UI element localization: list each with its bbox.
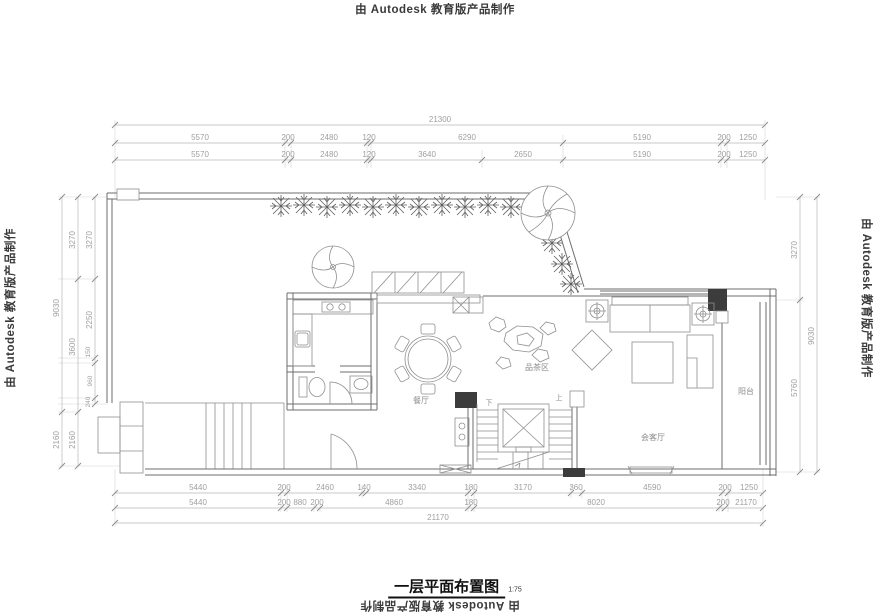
kitchen-counter-side [293, 314, 312, 366]
column-outline [716, 311, 728, 323]
floor-plan-svg: 21300 5570 200 2480 120 6290 5190 200 12… [0, 0, 878, 616]
pillar-left [586, 300, 608, 322]
planter-box [98, 417, 120, 453]
chaise [687, 335, 713, 388]
dim-label: 2460 [316, 483, 334, 492]
dim-label: 140 [357, 483, 371, 492]
house-walls [145, 289, 776, 477]
dim-label: 200 [281, 133, 295, 142]
window-bench [628, 466, 674, 474]
bathroom-door [330, 382, 352, 404]
toilet-tank [299, 377, 307, 397]
dim-label: 1250 [740, 483, 758, 492]
dim-label: 2160 [68, 431, 77, 449]
dim-label: 120 [362, 133, 376, 142]
burner [339, 304, 345, 310]
dim-label: 5440 [189, 498, 207, 507]
bathroom [299, 376, 372, 404]
dim-label: 3600 [68, 338, 77, 356]
stair-label-down: 下 [486, 399, 493, 407]
dim-label: 5440 [189, 483, 207, 492]
coffee-table [632, 342, 673, 383]
dim-label: 1250 [739, 133, 757, 142]
burner [327, 304, 333, 310]
living-room [572, 297, 714, 388]
tree-large [521, 186, 575, 240]
dim-label: 8020 [587, 498, 605, 507]
end-table-diamond [572, 330, 612, 370]
stair-label-up: 上 [556, 393, 563, 402]
dim-label: 3170 [514, 483, 532, 492]
dim-label: 5190 [633, 133, 651, 142]
dim-label: 4590 [643, 483, 661, 492]
dim-label: 3640 [418, 150, 436, 159]
dim-label: 200 [281, 150, 295, 159]
drawing-title: 一层平面布置图 [388, 579, 505, 599]
dim-label: 200 [277, 483, 291, 492]
planter-column [120, 402, 143, 473]
dining-area [331, 324, 469, 469]
dim-label: 3340 [408, 483, 426, 492]
dim-label: 1250 [739, 150, 757, 159]
dim-label: 9030 [807, 327, 816, 345]
drawing-sheet: 由 Autodesk 教育版产品制作 由 Autodesk 教育版产品制作 由 … [0, 0, 878, 616]
dim-label: 200 [718, 483, 732, 492]
stove [322, 302, 350, 312]
dim-label: 960 [87, 375, 94, 386]
gate-pier [117, 189, 139, 200]
dim-label: 21170 [427, 513, 449, 522]
dimension-labels: 21300 5570 200 2480 120 6290 5190 200 12… [52, 115, 816, 522]
dim-label: 21300 [429, 115, 452, 124]
title-block: 一层平面布置图1:75 [388, 576, 522, 597]
dim-label: 880 [293, 498, 307, 507]
dim-label: 360 [569, 483, 583, 492]
wardrobe-cabinet [372, 272, 483, 313]
elevator-door [516, 447, 531, 452]
tree-small [312, 246, 354, 288]
dim-label: 120 [362, 150, 376, 159]
dim-label: 5190 [633, 150, 651, 159]
dim-label: 2250 [85, 311, 94, 329]
toilet-bowl [309, 378, 325, 397]
stair-run-lower [496, 452, 549, 469]
column [708, 289, 727, 311]
dim-label: 2160 [52, 431, 61, 449]
cabinet [455, 418, 469, 446]
dim-label: 180 [464, 498, 478, 507]
column-outline [570, 391, 584, 407]
entry-door [331, 434, 357, 469]
dim-label: 2650 [514, 150, 532, 159]
dim-label: 3270 [85, 231, 94, 249]
dim-label: 3270 [68, 231, 77, 249]
sofa-back [612, 297, 688, 305]
dim-label: 21170 [735, 498, 757, 507]
dining-table [405, 336, 451, 382]
dim-label: 4860 [385, 498, 403, 507]
dim-label: 240 [85, 396, 92, 407]
dim-label: 200 [277, 498, 291, 507]
room-label-balcony: 阳台 [738, 386, 754, 396]
room-label-living: 会客厅 [641, 432, 665, 442]
dimension-lines [59, 122, 820, 526]
dim-label: 9030 [52, 299, 61, 317]
dim-label: 3270 [790, 241, 799, 259]
dim-label: 5570 [191, 133, 209, 142]
dim-label: 5760 [790, 379, 799, 397]
tea-area-rocks [489, 317, 556, 369]
dim-label: 200 [716, 498, 730, 507]
dim-label: 2480 [320, 150, 338, 159]
garden-boundary [98, 189, 584, 473]
room-label-tea: 品茶区 [525, 362, 549, 372]
column [563, 468, 585, 477]
stair-treads-left [477, 404, 498, 462]
column [455, 392, 477, 408]
dim-label: 5570 [191, 150, 209, 159]
dim-label: 6290 [458, 133, 476, 142]
dim-label: 200 [717, 133, 731, 142]
dim-label: 150 [85, 346, 92, 357]
kitchen [293, 300, 373, 366]
dim-label: 200 [717, 150, 731, 159]
stair-elevator-core [477, 404, 572, 469]
dim-label: 2480 [320, 133, 338, 142]
drawing-scale: 1:75 [508, 587, 522, 594]
room-label-dining: 餐厅 [413, 396, 429, 405]
exterior-steps [145, 403, 284, 469]
dim-label: 180 [464, 483, 478, 492]
stair-treads-right [549, 410, 572, 459]
dim-label: 200 [310, 498, 324, 507]
extension-lines [58, 120, 820, 527]
